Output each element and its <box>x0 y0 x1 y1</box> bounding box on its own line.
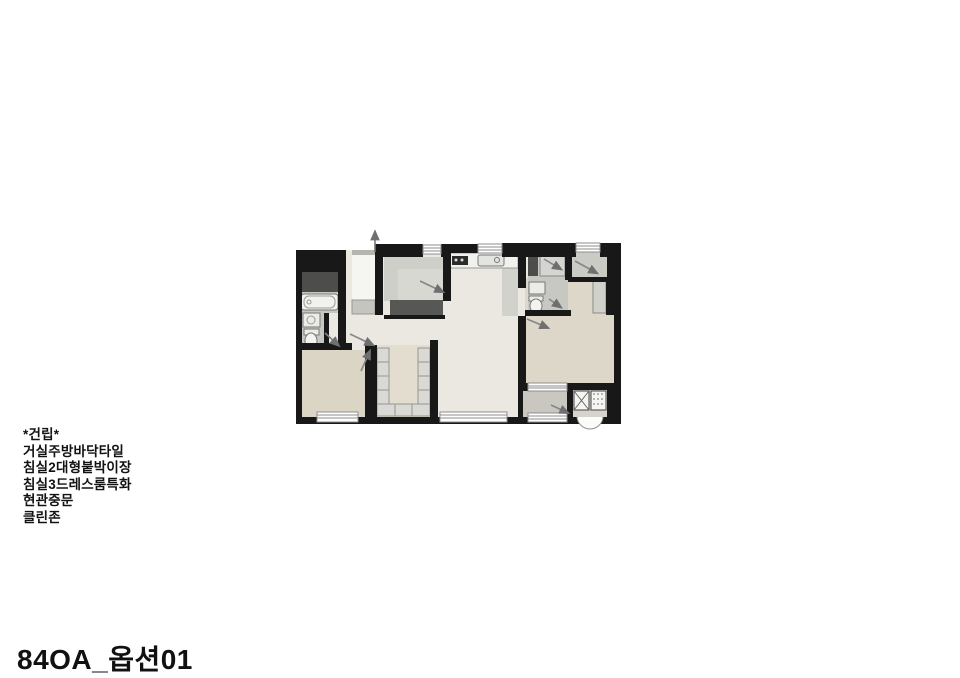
page-title: 84OA_옵션01 <box>17 638 193 678</box>
kitchen-cabinet-band <box>502 268 518 316</box>
note-line: 침실2대형붙박이장 <box>23 460 132 477</box>
page: *건립* 거실주방바닥타일 침실2대형붙박이장 침실3드레스룸특화 현관중문 클… <box>0 0 960 678</box>
window-top-1 <box>423 245 441 254</box>
master-closet <box>593 280 606 313</box>
folding-door-arc <box>577 417 603 429</box>
option-notes: *건립* 거실주방바닥타일 침실2대형붙박이장 침실3드레스룸특화 현관중문 클… <box>23 427 132 527</box>
pantry-inner <box>398 269 443 301</box>
floor-plan <box>0 0 960 678</box>
shoe-cabinet <box>352 300 375 314</box>
note-line: 클린존 <box>23 510 132 527</box>
window-master-balcony <box>528 383 567 391</box>
window-top-right <box>576 243 600 252</box>
note-line: 침실3드레스룸특화 <box>23 477 132 494</box>
kitchen-sink <box>478 255 504 266</box>
window-top-kitchen <box>478 244 502 253</box>
window-bedroom2 <box>317 412 358 422</box>
bathroom2-sink <box>529 282 545 294</box>
pantry-counter-dark <box>390 300 443 315</box>
entry-threshold <box>352 250 375 255</box>
cooktop <box>452 256 468 265</box>
window-balcony-bottom <box>528 413 567 422</box>
duct-box <box>302 272 338 292</box>
note-line: 현관중문 <box>23 493 132 510</box>
bedroom2-floor <box>302 350 365 417</box>
bathroom1-sink <box>303 313 320 327</box>
drawer-unit <box>377 404 430 416</box>
notes-header: *건립* <box>23 427 132 444</box>
window-living <box>440 412 507 422</box>
note-line: 거실주방바닥타일 <box>23 444 132 461</box>
